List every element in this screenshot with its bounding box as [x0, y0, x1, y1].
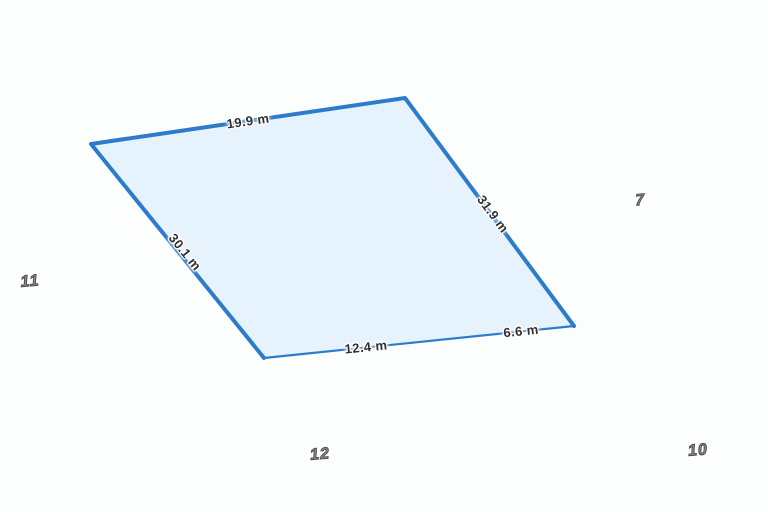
lot-number-10: 10 [687, 441, 708, 461]
parcel-map-layer [0, 0, 768, 512]
lot-number-11: 11 [20, 272, 40, 292]
lot-number-12: 12 [309, 445, 330, 465]
map-canvas[interactable]: 19.9 m 30.1 m 31.9 m 12.4 m 6.6 m 11 7 1… [0, 0, 768, 512]
